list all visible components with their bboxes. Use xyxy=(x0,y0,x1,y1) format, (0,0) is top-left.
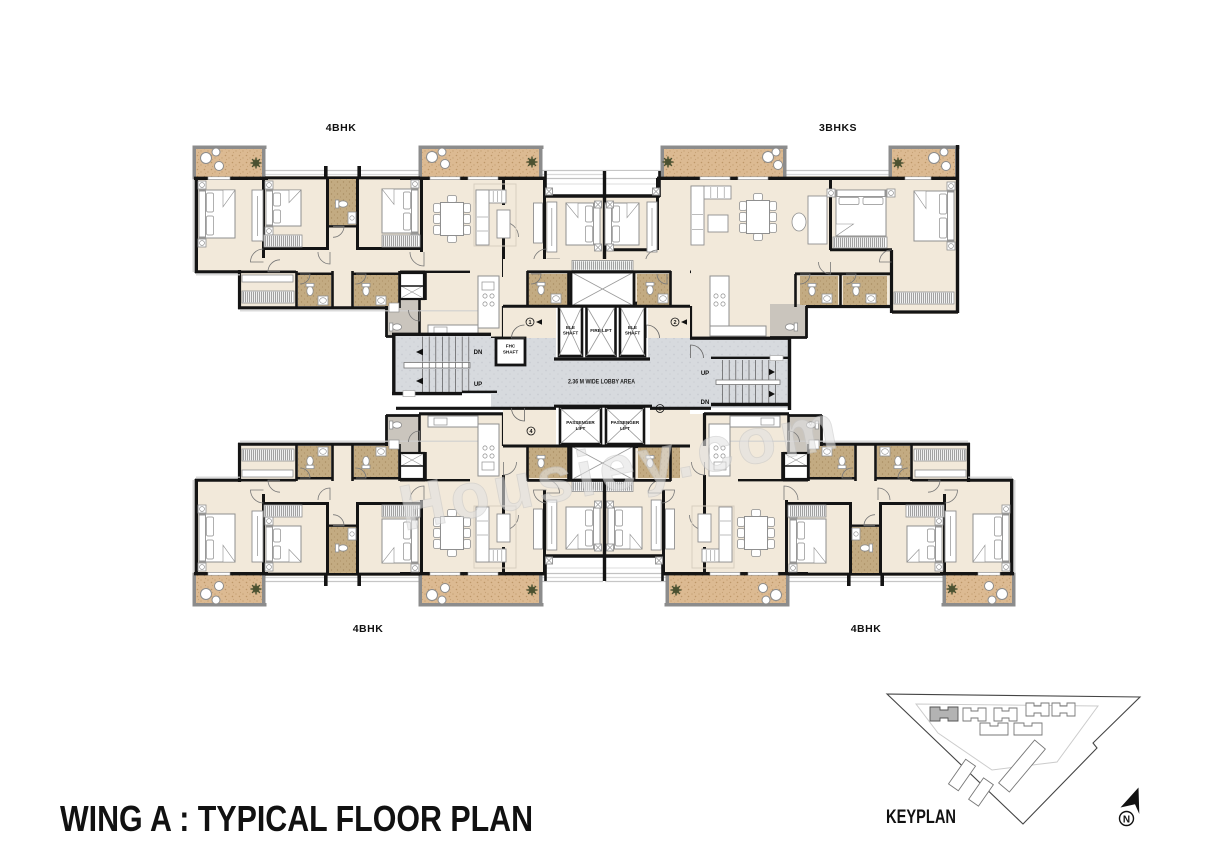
svg-text:ELE: ELE xyxy=(566,325,575,330)
svg-text:DN: DN xyxy=(474,350,483,356)
svg-text:FIRE LIFT: FIRE LIFT xyxy=(590,328,612,333)
svg-text:PASSENGER: PASSENGER xyxy=(611,420,640,425)
svg-text:3BHKS: 3BHKS xyxy=(819,122,857,134)
svg-text:UP: UP xyxy=(701,371,709,377)
svg-text:SHAFT: SHAFT xyxy=(625,331,641,336)
svg-text:4BHK: 4BHK xyxy=(326,122,357,134)
svg-text:SHAFT: SHAFT xyxy=(563,331,579,336)
svg-text:N: N xyxy=(1123,815,1130,826)
svg-text:WING A : TYPICAL FLOOR PLAN: WING A : TYPICAL FLOOR PLAN xyxy=(60,798,533,839)
svg-text:FHC: FHC xyxy=(506,344,516,349)
svg-text:4BHK: 4BHK xyxy=(851,623,882,635)
svg-text:1: 1 xyxy=(528,320,531,326)
svg-text:SHAFT: SHAFT xyxy=(503,350,519,355)
svg-text:2: 2 xyxy=(673,320,676,326)
svg-text:LIFT: LIFT xyxy=(576,426,586,431)
svg-text:4BHK: 4BHK xyxy=(353,623,384,635)
svg-text:KEYPLAN: KEYPLAN xyxy=(886,807,956,828)
svg-text:UP: UP xyxy=(474,382,482,388)
svg-text:PASSENGER: PASSENGER xyxy=(566,420,595,425)
svg-text:ELE: ELE xyxy=(628,325,637,330)
svg-text:DN: DN xyxy=(701,400,710,406)
svg-text:3: 3 xyxy=(658,407,661,413)
svg-text:2.36 M WIDE LOBBY AREA: 2.36 M WIDE LOBBY AREA xyxy=(568,380,636,386)
